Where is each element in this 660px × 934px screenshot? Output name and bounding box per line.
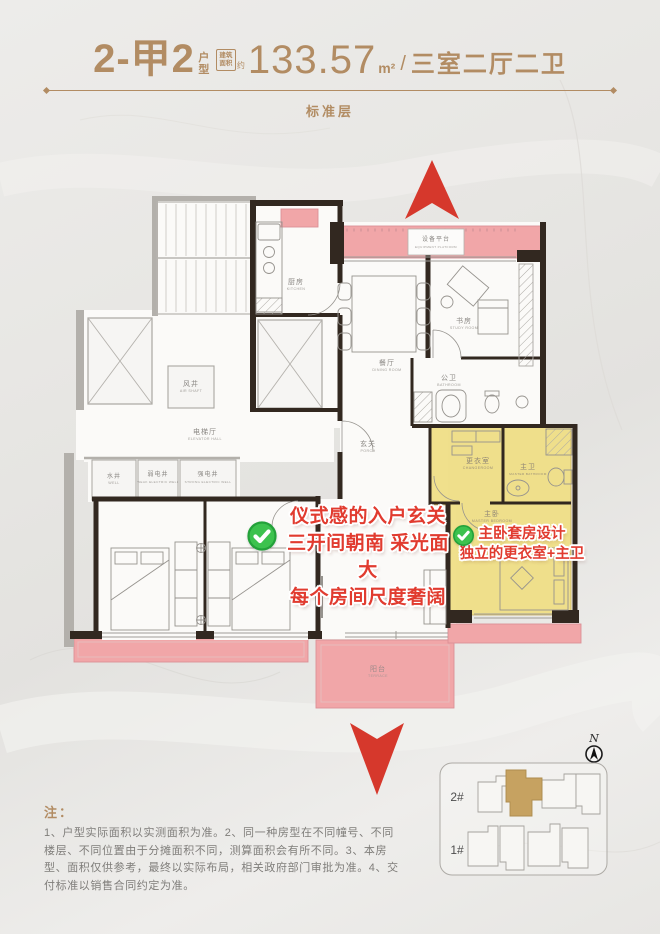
unit-type-label: 户型	[198, 53, 210, 76]
notes: 注： 1、户型实际面积以实测面积为准。2、同一种房型在不同幢号、不同 楼层、不同…	[44, 802, 446, 895]
room-label-terrace-cn: 阳台	[370, 664, 386, 673]
room-label-dining-cn: 餐厅	[379, 358, 395, 367]
room-label-equipment-cn: 设备平台	[422, 235, 450, 243]
site-building-2-label: 2#	[450, 790, 464, 804]
header-rule	[44, 88, 616, 93]
room-label-well-en: WELL	[108, 481, 119, 485]
room-label-dining-en: DINING ROOM	[372, 368, 401, 372]
room-label-bathroom-en: BATHROOM	[437, 383, 461, 387]
room-label-porch-cn: 玄关	[360, 439, 376, 448]
area-prefix-box: 建筑面积	[216, 49, 236, 71]
annotation-right-line2: 独立的更衣室+主卫	[447, 544, 597, 564]
notes-line3: 型、面积仅供参考，最终以实际布局，相关政府部门审批为准。4、交	[44, 860, 446, 878]
diamond-ornament-left	[43, 87, 50, 94]
annotation-left: 仪式感的入户玄关 三开间朝南 采光面大 每个房间尺度奢阔	[281, 503, 455, 611]
notes-line4: 付标准以销售合同约定为准。	[44, 878, 446, 896]
room-label-porch-en: PORCH	[361, 449, 376, 453]
room-label-changeroom-en: CHANGEROOM	[463, 466, 494, 470]
area-unit: m²	[378, 60, 395, 76]
notes-label: 注：	[44, 802, 446, 821]
room-config: 三室二厅二卫	[411, 52, 567, 78]
elevator-left	[88, 318, 152, 404]
room-label-changeroom-cn: 更衣室	[466, 456, 490, 465]
room-label-study-en: STUDY ROOM	[450, 326, 478, 330]
elevator-right	[258, 320, 322, 408]
floor-plan: 厨房 设备平台 餐厅 书房 公卫 玄关 风井 电梯厅 水井 弱电井 强电井 更衣…	[0, 0, 660, 934]
site-plan: 2# 1#	[440, 763, 607, 875]
area-approx-label: 约	[237, 60, 245, 71]
room-label-kitchen-cn: 厨房	[288, 277, 304, 286]
annotation-left-line2: 三开间朝南 采光面大	[281, 530, 455, 584]
floor-label: 标准层	[0, 101, 660, 120]
check-icon-right	[452, 524, 475, 547]
compass-n-label: N	[588, 732, 599, 745]
room-label-masterbath-cn: 主卫	[520, 462, 536, 471]
diamond-ornament-right	[610, 87, 617, 94]
room-label-airshaft-en: AIR SHAFT	[180, 389, 203, 393]
room-label-well-cn: 水井	[107, 472, 121, 480]
room-label-study-cn: 书房	[456, 316, 472, 325]
room-label-masterbedroom-cn: 主卧	[484, 509, 500, 518]
header: 2-甲2 户型 建筑面积 约 133.57 m² / 三室二厅二卫 标准层	[0, 0, 660, 120]
compass: N	[586, 732, 602, 762]
unit-code: 2-甲2	[93, 39, 195, 79]
area-value: 133.57	[248, 41, 376, 79]
kitchen-platform-zone	[281, 209, 318, 227]
master-balcony-strip	[448, 624, 581, 643]
room-label-terrace-en: TERRACE	[368, 674, 388, 678]
room-label-strongwell-cn: 强电井	[197, 470, 218, 478]
room-label-bathroom-cn: 公卫	[441, 374, 457, 382]
site-building-1-label: 1#	[450, 843, 464, 857]
notes-line2: 楼层、不同位置由于分摊面积不同，测算面积会有所不同。3、本房	[44, 843, 446, 861]
header-rule-line	[49, 90, 611, 91]
room-label-weakwell-en: WEAK ELECTRIC WELL	[137, 480, 179, 484]
room-label-masterbedroom-en: MASTER BEDROOM	[472, 519, 512, 523]
well-box	[92, 460, 136, 500]
room-label-weakwell-cn: 弱电井	[147, 470, 168, 478]
room-label-masterbath-en: MASTER BATHROOM	[509, 472, 546, 476]
title-row: 2-甲2 户型 建筑面积 约 133.57 m² / 三室二厅二卫	[0, 33, 660, 79]
room-label-elevatorhall-en: ELEVATOR HALL	[188, 437, 222, 441]
floorplan-poster: 厨房 设备平台 餐厅 书房 公卫 玄关 风井 电梯厅 水井 弱电井 强电井 更衣…	[0, 0, 660, 934]
annotation-left-line3: 每个房间尺度奢阔	[281, 584, 455, 611]
check-icon-left	[246, 520, 278, 552]
notes-line1: 1、户型实际面积以实测面积为准。2、同一种房型在不同幢号、不同	[44, 825, 446, 843]
annotation-left-line1: 仪式感的入户玄关	[281, 503, 455, 530]
room-label-airshaft-cn: 风井	[183, 379, 199, 388]
room-label-equipment-en: EQUIPMENT PLATFORM	[415, 245, 457, 249]
room-label-strongwell-en: STRONG ELECTRIC WELL	[185, 480, 232, 484]
title-divider: /	[400, 53, 406, 76]
room-label-elevatorhall-cn: 电梯厅	[193, 427, 217, 436]
room-label-kitchen-en: KITCHEN	[287, 287, 306, 291]
